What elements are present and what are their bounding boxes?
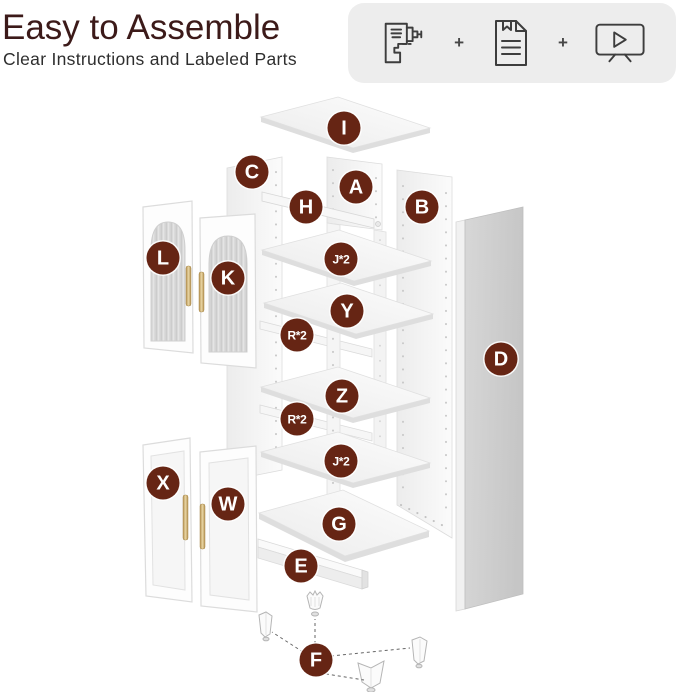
part-label-F: F [300,644,333,677]
leg-left [259,612,272,641]
part-label-Y: Y [331,295,364,328]
part-side-panel-D [456,207,523,611]
door-handle-K [199,272,204,312]
part-label-D: D [485,343,518,376]
part-label-E: E [285,550,318,583]
part-label-G: G [323,508,356,541]
part-label-K: K [212,262,245,295]
part-label-X: X [147,467,180,500]
part-label-Z: Z [326,380,359,413]
part-label-I: I [328,112,361,145]
leg-front-top [307,591,323,616]
door-handle-X [183,495,188,540]
part-door-L [143,201,193,353]
part-label-H: H [290,191,323,224]
part-label-J-bottom: J*2 [325,445,358,478]
part-label-J-top: J*2 [325,243,358,276]
part-label-W: W [212,488,245,521]
part-label-A: A [340,171,373,204]
leg-front-bottom [358,661,384,692]
part-legs-F [259,591,427,692]
cabinet-parts-illustration [0,0,679,692]
part-label-B: B [406,191,439,224]
door-handle-W [200,504,205,549]
part-label-R-top: R*2 [281,319,314,352]
leg-connector-lines [272,619,410,680]
part-label-C: C [236,156,269,189]
part-label-L: L [147,242,180,275]
leg-right [412,637,427,668]
part-door-W [200,446,257,612]
part-label-R-bottom: R*2 [281,403,314,436]
exploded-assembly-diagram: ICABHLKJ*2YR*2ZR*2J*2DXWGEF [0,0,679,692]
door-handle-L [186,266,191,306]
part-panel-B [397,170,452,538]
